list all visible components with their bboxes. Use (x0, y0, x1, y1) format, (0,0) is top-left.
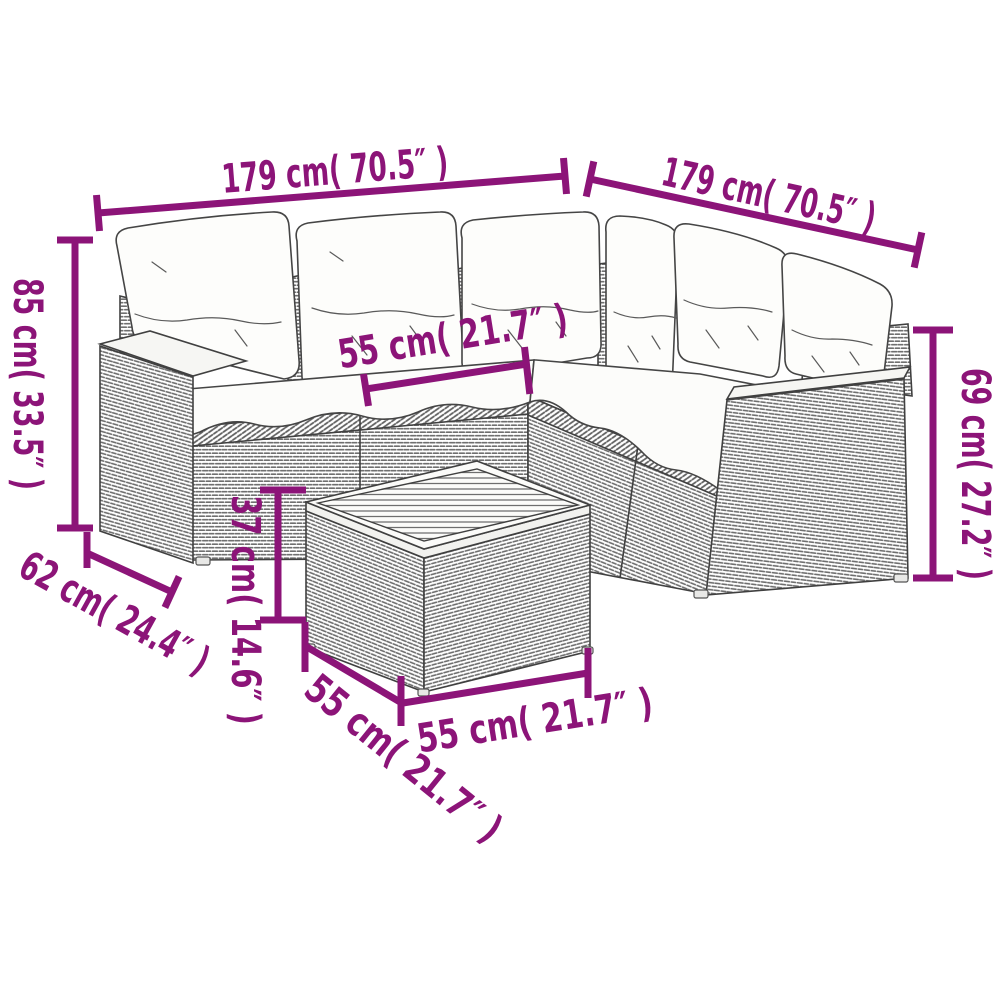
dimension-line (913, 330, 953, 578)
product-dimension-diagram: 179 cm( 70.5″ ) 179 cm( 70.5″ ) 85 cm( 3… (0, 0, 994, 994)
dimension-label-arm-height: 69 cm( 27.2″ ) (952, 368, 994, 580)
diagram-canvas: 179 cm( 70.5″ ) 179 cm( 70.5″ ) 85 cm( 3… (0, 0, 994, 994)
dimension-line (57, 240, 93, 528)
dim-back-height (57, 240, 93, 528)
dimension-label-sofa-width-left: 179 cm( 70.5″ ) (220, 139, 450, 203)
coffee-table-illustration (300, 461, 600, 696)
right-armrest (706, 367, 910, 595)
dim-arm-height (913, 330, 953, 578)
dimension-label-back-height: 85 cm( 33.5″ ) (4, 278, 50, 490)
back-cushion (674, 224, 788, 377)
dimension-label-table-height: 37 cm( 14.6″ ) (222, 495, 268, 725)
